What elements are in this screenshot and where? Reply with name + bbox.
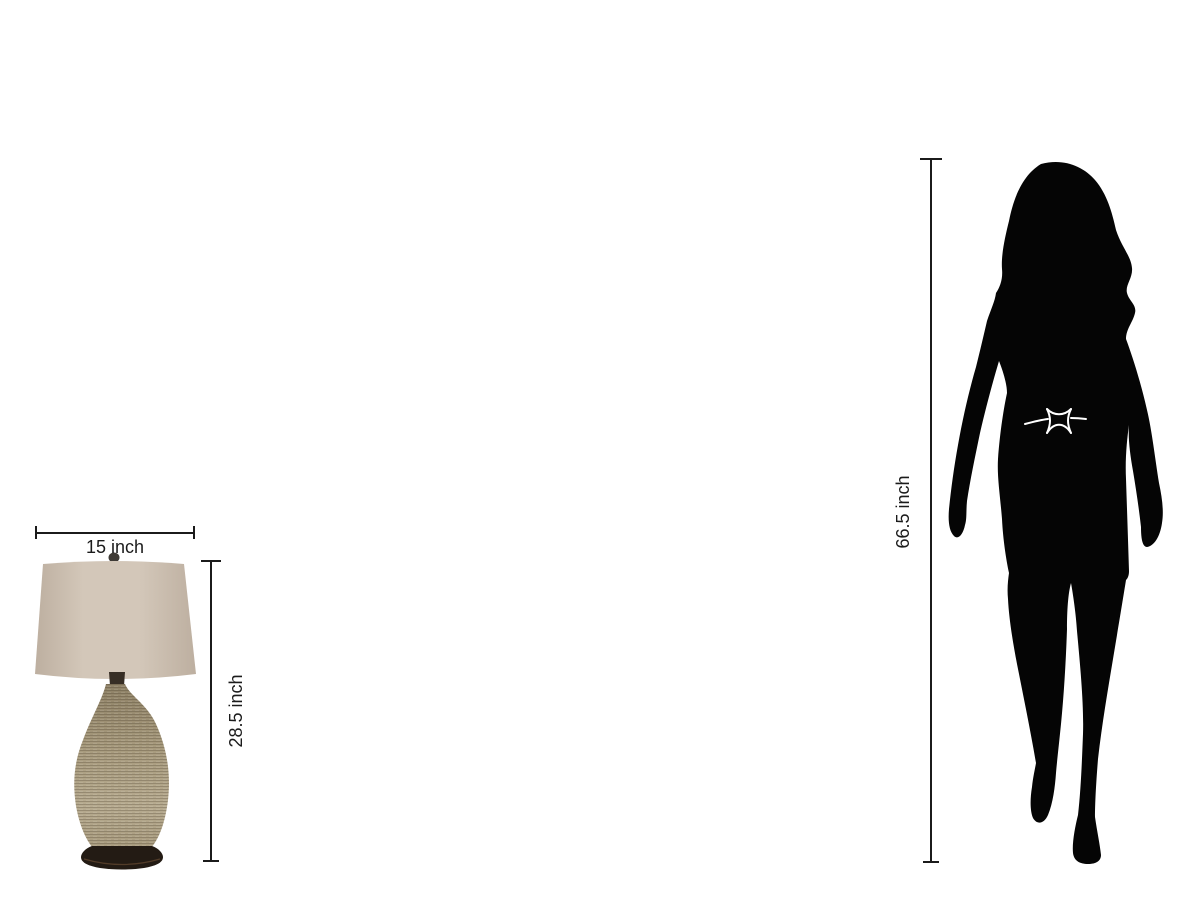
lamp-base (81, 846, 163, 870)
lamp-height-dimension-bottom-cap (203, 860, 219, 862)
lamp-height-dimension-top-cap (201, 560, 221, 562)
table-lamp-image (30, 548, 210, 873)
lamp-socket (109, 672, 125, 686)
lamp-height-label: 28.5 inch (227, 674, 247, 747)
lamp-shade (35, 561, 196, 679)
person-height-dimension-line (930, 159, 932, 862)
person-height-dimension-top-cap (920, 158, 942, 160)
size-comparison-canvas: 15 inch 28.5 inch 66.5 inch (0, 0, 1200, 900)
lamp-width-label: 15 inch (36, 538, 194, 558)
lamp-width-dimension-line (36, 532, 194, 534)
person-height-label: 66.5 inch (894, 475, 914, 548)
woman-silhouette (949, 162, 1163, 864)
woman-silhouette-image (945, 158, 1165, 865)
lamp-body-texture (74, 684, 169, 848)
person-height-dimension-bottom-cap (923, 861, 939, 863)
lamp-height-dimension-line (210, 561, 212, 861)
